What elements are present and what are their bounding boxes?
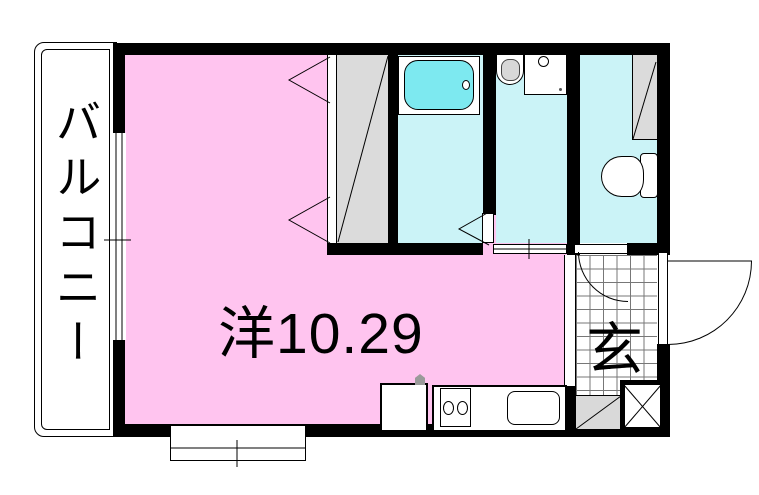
entrance-step-edge xyxy=(564,255,576,386)
bathtub-drain-icon xyxy=(462,80,470,90)
washing-machine-drain-icon xyxy=(538,56,549,67)
kitchen-sink-icon xyxy=(507,391,560,425)
toilet-bowl-icon xyxy=(601,156,644,197)
wall-closet-bathroom xyxy=(388,43,398,255)
closet-door xyxy=(327,55,337,243)
shoe-cabinet xyxy=(575,395,622,430)
laundry-pan xyxy=(380,383,428,432)
entrance-label: 玄 xyxy=(586,304,643,386)
closet xyxy=(337,55,388,243)
pipe-space-box xyxy=(620,380,665,432)
wall-right-upper xyxy=(657,43,670,255)
washroom-sliding-door xyxy=(493,244,567,254)
main-room-label: 洋10.29 xyxy=(218,288,424,370)
balcony-area: バルコニー xyxy=(41,49,110,430)
wall-sanitary-bottom xyxy=(327,243,483,255)
floorplan-canvas: バルコニー 洋 xyxy=(0,0,759,495)
stove-burner-icon xyxy=(457,401,468,415)
stove-burner-icon xyxy=(443,401,454,415)
bottom-window xyxy=(170,425,306,461)
entry-door-swing-arc xyxy=(668,261,752,345)
bathroom-folding-door xyxy=(482,213,494,243)
wall-left-lower xyxy=(113,339,125,436)
washing-machine-pan-dot xyxy=(559,88,562,91)
wall-washroom-toilet xyxy=(567,43,580,255)
wall-left-upper xyxy=(113,43,125,134)
balcony-window xyxy=(113,133,126,340)
entry-door-opening xyxy=(658,252,668,345)
toilet-shelf xyxy=(632,55,657,140)
balcony-label: バルコニー xyxy=(43,98,109,429)
washbasin-bowl-icon xyxy=(501,59,520,81)
wall-bathroom-washroom xyxy=(483,43,496,215)
